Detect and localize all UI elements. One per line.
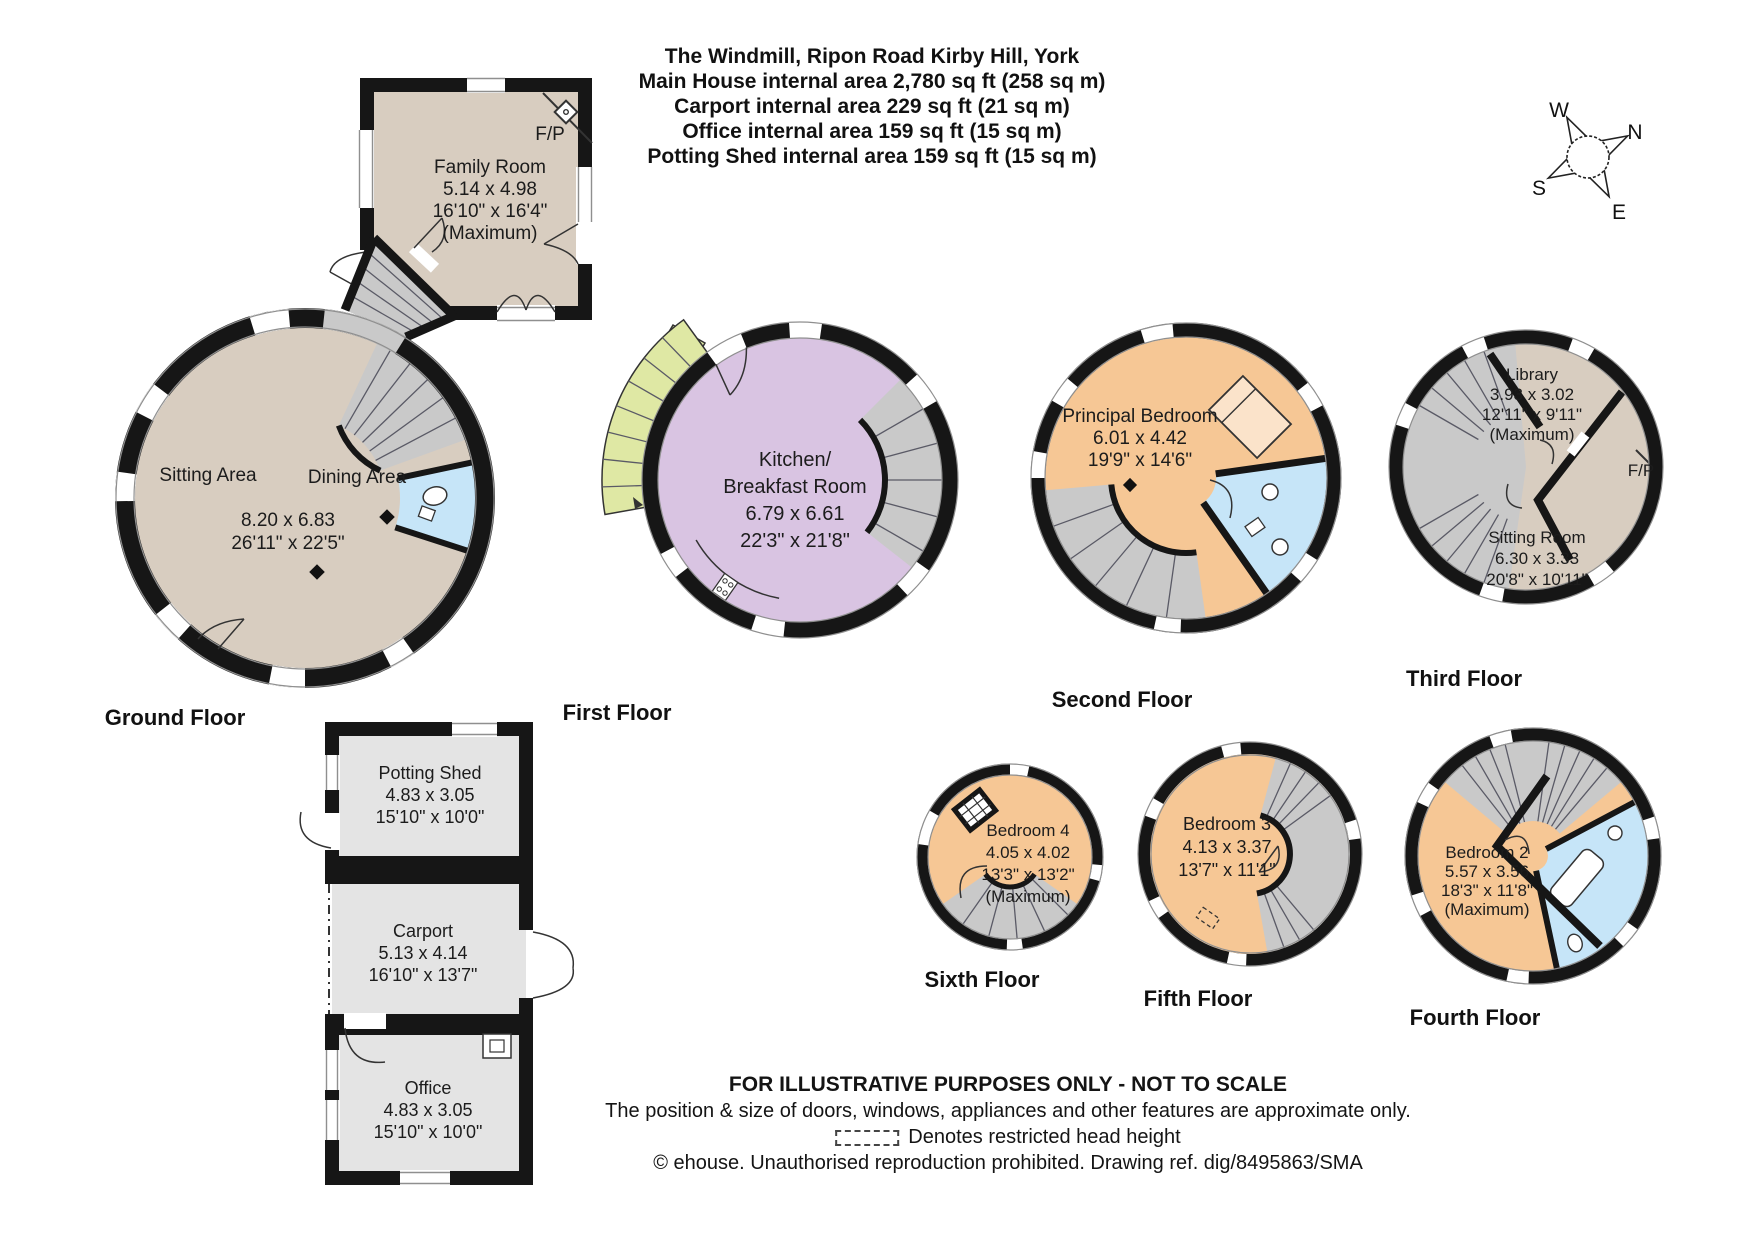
potting-shed-label: Potting Shed 4.83 x 3.05 15'10" x 10'0"	[376, 762, 485, 828]
third-floor-label: Third Floor	[1406, 666, 1522, 692]
bedroom4-label: Bedroom 4 4.05 x 4.02 13'3" x 13'2" (Max…	[981, 820, 1074, 908]
bedroom3-label: Bedroom 3 4.13 x 3.37 13'7" x 11'1"	[1178, 813, 1275, 882]
second-floor-label: Second Floor	[1052, 687, 1193, 713]
footer-restricted-head-height: Denotes restricted head height	[605, 1124, 1411, 1150]
property-title: The Windmill, Ripon Road Kirby Hill, Yor…	[639, 44, 1106, 69]
title-block: The Windmill, Ripon Road Kirby Hill, Yor…	[639, 44, 1106, 169]
footer-disclaimer: FOR ILLUSTRATIVE PURPOSES ONLY - NOT TO …	[605, 1072, 1411, 1098]
potting-shed-area: Potting Shed internal area 159 sq ft (15…	[639, 144, 1106, 169]
office-label: Office 4.83 x 3.05 15'10" x 10'0"	[374, 1077, 483, 1143]
dining-area-label: Dining Area	[308, 467, 406, 489]
fourth-floor-label: Fourth Floor	[1410, 1005, 1541, 1031]
library-label: Library 3.93 x 3.02 12'11" x 9'11" (Maxi…	[1482, 365, 1582, 445]
ground-floor-plan	[110, 303, 500, 693]
footer-approximate-note: The position & size of doors, windows, a…	[605, 1098, 1411, 1124]
compass-icon: N W S E	[1525, 75, 1665, 230]
compass-east: E	[1612, 201, 1626, 224]
bedroom2-label: Bedroom 2 5.57 x 3.56 18'3" x 11'8" (Max…	[1441, 843, 1533, 919]
fifth-floor-label: Fifth Floor	[1144, 986, 1253, 1012]
office-area: Office internal area 159 sq ft (15 sq m)	[639, 119, 1106, 144]
second-floor-plan	[1030, 322, 1342, 634]
principal-bedroom-label: Principal Bedroom 6.01 x 4.42 19'9" x 14…	[1062, 406, 1217, 472]
kitchen-label: Kitchen/ Breakfast Room 6.79 x 6.61 22'3…	[723, 447, 866, 555]
compass-south: S	[1532, 177, 1546, 200]
footer-copyright: © ehouse. Unauthorised reproduction proh…	[605, 1150, 1411, 1176]
third-sitting-room-label: Sitting Room 6.30 x 3.33 20'8" x 10'11"	[1486, 527, 1587, 590]
ground-floor-label: Ground Floor	[105, 705, 246, 731]
carport-doors	[533, 932, 573, 998]
main-house-area: Main House internal area 2,780 sq ft (25…	[639, 69, 1106, 94]
compass-west: W	[1549, 99, 1569, 122]
office-flue-icon	[483, 1034, 511, 1058]
floorplan-canvas: N W S E The Windmill, Ripon Road Kirby H…	[0, 0, 1754, 1240]
restricted-head-height-symbol	[835, 1130, 899, 1146]
sitting-area-label: Sitting Area	[159, 465, 256, 487]
first-floor-label: First Floor	[563, 700, 672, 726]
compass-north: N	[1627, 121, 1642, 144]
third-fireplace-label: F/P	[1628, 461, 1654, 481]
carport-label: Carport 5.13 x 4.14 16'10" x 13'7"	[369, 920, 478, 986]
family-room-fireplace-label: F/P	[535, 124, 565, 146]
family-room-label: Family Room 5.14 x 4.98 16'10" x 16'4" (…	[433, 157, 548, 245]
ground-dims-label: 8.20 x 6.83 26'11" x 22'5"	[231, 509, 344, 555]
sixth-floor-label: Sixth Floor	[925, 967, 1040, 993]
carport-area: Carport internal area 229 sq ft (21 sq m…	[639, 94, 1106, 119]
footer: FOR ILLUSTRATIVE PURPOSES ONLY - NOT TO …	[605, 1072, 1411, 1176]
